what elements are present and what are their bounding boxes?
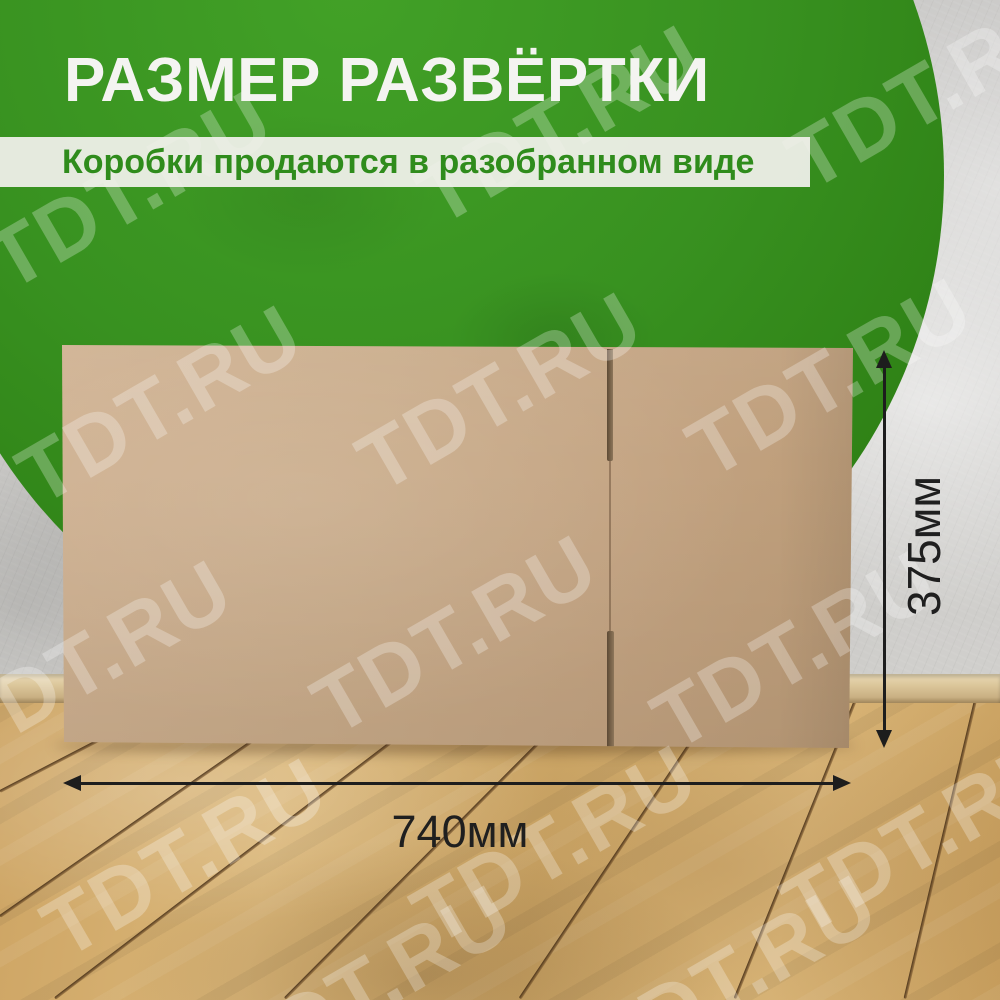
box-crease <box>609 461 611 631</box>
height-dimension-label: 375мм <box>897 476 951 616</box>
floor-plank-seam <box>904 703 977 999</box>
box-slot-bottom <box>607 631 614 747</box>
subtitle-bar: Коробки продаются в разобранном виде <box>0 137 810 187</box>
width-dimension-label: 740мм <box>392 806 529 858</box>
arrowhead-down-icon <box>876 730 892 748</box>
subtitle-text: Коробки продаются в разобранном виде <box>62 137 754 187</box>
box-slot-top <box>607 349 613 461</box>
arrowhead-up-icon <box>876 350 892 368</box>
arrowhead-left-icon <box>63 775 81 791</box>
arrowhead-right-icon <box>833 775 851 791</box>
cardboard-box <box>60 343 857 752</box>
page-title: РАЗМЕР РАЗВЁРТКИ <box>64 48 710 113</box>
height-arrow-line <box>883 360 886 732</box>
product-photo: TDT.RUTDT.RUTDT.RUTDT.RUTDT.RUTDT.RUTDT.… <box>0 0 1000 1000</box>
width-arrow-line <box>76 782 836 785</box>
